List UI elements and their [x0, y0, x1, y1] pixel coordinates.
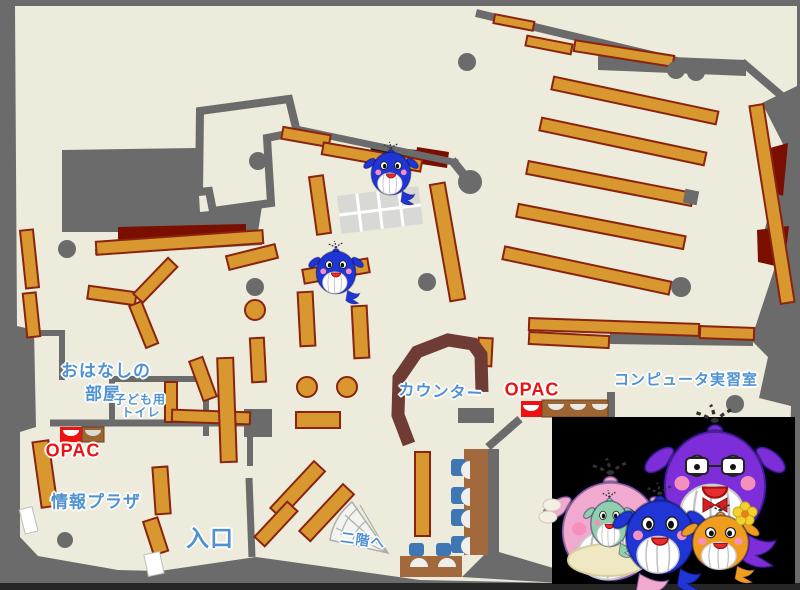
- label-counter: カウンター: [398, 376, 484, 404]
- library-floor-map: おはなしの 部屋 子ども用 トイレ 情報プラザ 入口 カウンター OPAC OP…: [0, 0, 800, 590]
- label-computer-room: コンピュータ実習室: [614, 369, 758, 390]
- counter-desk: [458, 408, 494, 423]
- label-kids-toilet-line2: トイレ: [121, 404, 160, 421]
- label-opac-right: OPAC: [505, 380, 560, 401]
- opac-station-right: [521, 400, 608, 417]
- label-entrance: 入口: [186, 519, 234, 553]
- label-opac-left: OPAC: [46, 441, 101, 462]
- label-info-plaza: 情報プラザ: [51, 488, 141, 513]
- label-storytelling-room-line1: おはなしの: [61, 357, 151, 382]
